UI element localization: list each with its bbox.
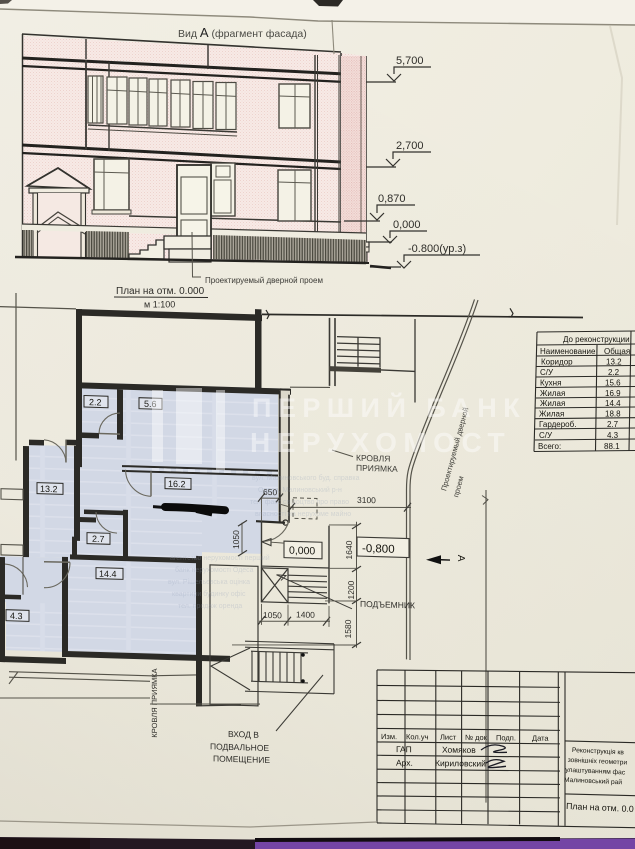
svg-text:тел. продаж оренда: тел. продаж оренда <box>178 603 242 610</box>
svg-text:Арх.: Арх. <box>396 758 413 768</box>
svg-text:ГАП: ГАП <box>396 744 412 754</box>
svg-text:Жилая: Жилая <box>540 389 565 398</box>
svg-text:квартири будинку офіс: квартири будинку офіс <box>172 590 246 598</box>
svg-text:власності на нерухоме майно: власності на нерухоме майно <box>255 510 351 518</box>
svg-text:Всего:: Всего: <box>538 442 561 451</box>
svg-text:Изм.: Изм. <box>381 732 397 741</box>
svg-text:банк нерухомості Одеса: банк нерухомості Одеса <box>175 566 254 574</box>
svg-text:Кухня: Кухня <box>540 379 561 388</box>
svg-text:-0.800(ур.з): -0.800(ур.з) <box>408 243 466 255</box>
svg-text:1050: 1050 <box>263 610 282 621</box>
svg-text:5,700: 5,700 <box>396 55 424 67</box>
svg-text:А: А <box>455 555 466 562</box>
svg-text:4.3: 4.3 <box>10 611 23 621</box>
svg-text:4.3: 4.3 <box>607 431 619 440</box>
svg-text:1580: 1580 <box>343 619 353 638</box>
svg-text:Вид А (фрагмент фасада): Вид А (фрагмент фасада) <box>178 25 307 40</box>
svg-text:0,000: 0,000 <box>289 545 315 558</box>
svg-text:2,700: 2,700 <box>396 140 424 152</box>
svg-text:ПОДЪЕМНИК: ПОДЪЕМНИК <box>360 599 415 611</box>
svg-text:2.7: 2.7 <box>92 534 105 544</box>
svg-text:-0,800: -0,800 <box>362 543 395 556</box>
svg-text:ПЕРШИЙ БАНК: ПЕРШИЙ БАНК <box>252 392 526 423</box>
svg-text:тел. факс свідоцтво про право: тел. факс свідоцтво про право <box>250 498 349 506</box>
svg-text:Проектируемый дверной проем: Проектируемый дверной проем <box>205 276 323 285</box>
svg-text:План на отм. 0.000: План на отм. 0.000 <box>116 286 205 297</box>
svg-text:Дата: Дата <box>532 734 549 743</box>
svg-text:вул. Рішельєвська оцінка: вул. Рішельєвська оцінка <box>168 578 250 586</box>
svg-text:88.1: 88.1 <box>604 442 620 451</box>
svg-text:0,000: 0,000 <box>393 219 421 231</box>
svg-text:№ док.: № док. <box>465 733 489 742</box>
svg-text:1050: 1050 <box>231 530 241 549</box>
svg-text:16.9: 16.9 <box>605 389 621 398</box>
svg-text:С/У: С/У <box>539 431 553 440</box>
svg-text:Подп.: Подп. <box>496 733 516 742</box>
svg-text:18.8: 18.8 <box>605 410 621 419</box>
svg-text:2.7: 2.7 <box>607 420 619 429</box>
svg-text:вул. Малиновського буд. справк: вул. Малиновського буд. справка <box>252 474 360 482</box>
svg-text:14.4: 14.4 <box>605 399 621 408</box>
svg-text:Жилая: Жилая <box>539 410 564 419</box>
svg-text:Общая: Общая <box>604 347 630 356</box>
svg-text:1640: 1640 <box>344 540 354 559</box>
svg-text:Одеса, Малиновський р-н: Одеса, Малиновський р-н <box>258 486 342 494</box>
svg-text:3100: 3100 <box>357 495 376 506</box>
svg-text:16.2: 16.2 <box>168 479 186 490</box>
svg-text:м 1:100: м 1:100 <box>144 300 175 310</box>
svg-text:ПОДВАЛЬНОЕ: ПОДВАЛЬНОЕ <box>210 741 269 753</box>
svg-text:Коридор: Коридор <box>541 358 573 367</box>
svg-text:15.6: 15.6 <box>605 379 621 388</box>
svg-text:Кириловский: Кириловский <box>435 758 486 769</box>
svg-text:ПОМЕЩЕНИЕ: ПОМЕЩЕНИЕ <box>213 753 270 765</box>
svg-text:Лист: Лист <box>440 733 457 742</box>
svg-text:ПРИЯМКА: ПРИЯМКА <box>356 463 398 474</box>
svg-text:13.2: 13.2 <box>40 484 58 495</box>
svg-text:2.2: 2.2 <box>89 397 102 407</box>
svg-text:НЕРУХОМОСТ: НЕРУХОМОСТ <box>250 427 511 458</box>
svg-text:14.4: 14.4 <box>99 569 117 580</box>
svg-text:2.2: 2.2 <box>608 368 620 377</box>
svg-text:КРОВЛЯ ПРИЯМКА: КРОВЛЯ ПРИЯМКА <box>150 668 159 737</box>
svg-text:Хомяков: Хомяков <box>442 745 476 755</box>
svg-text:1400: 1400 <box>296 609 315 620</box>
svg-text:Наименование: Наименование <box>540 347 596 356</box>
svg-text:агентство нерухомості перший: агентство нерухомості перший <box>170 554 270 562</box>
svg-text:До реконструкции: До реконструкции <box>563 335 630 344</box>
svg-text:Кол.уч: Кол.уч <box>406 732 429 741</box>
svg-text:ВХОД В: ВХОД В <box>228 729 259 740</box>
svg-text:Гардероб.: Гардероб. <box>539 420 576 429</box>
svg-text:0,870: 0,870 <box>378 193 406 205</box>
svg-text:13.2: 13.2 <box>606 358 622 367</box>
svg-text:1200: 1200 <box>346 580 356 599</box>
svg-text:Жилая: Жилая <box>540 399 565 408</box>
svg-text:С/У: С/У <box>540 368 554 377</box>
